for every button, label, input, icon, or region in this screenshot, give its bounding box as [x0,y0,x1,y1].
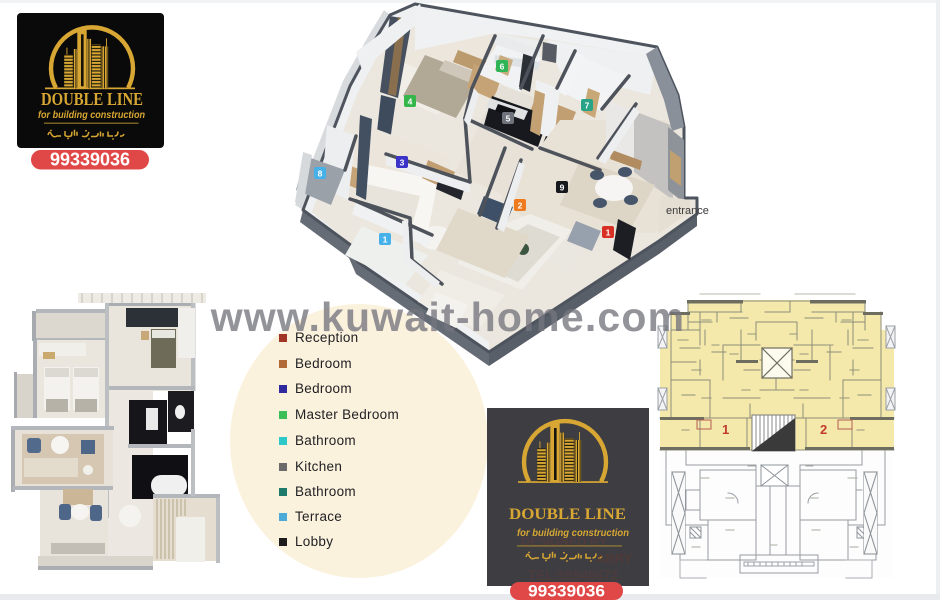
svg-text:DESIGNED BY: DESIGNED BY [521,535,608,549]
svg-text:entrance: entrance [666,205,709,217]
svg-text:6: 6 [500,62,505,72]
svg-text:5: 5 [506,114,511,124]
svg-text:7: 7 [585,101,590,111]
svg-text:1: 1 [722,422,729,437]
svg-text:for building construction: for building construction [38,110,145,121]
svg-text:99339036: 99339036 [528,583,605,600]
svg-text:TEL:55546672: TEL:55546672 [528,568,618,583]
svg-text:Bathroom: Bathroom [295,433,356,448]
svg-text:8: 8 [318,169,323,179]
svg-text:2: 2 [518,201,523,211]
svg-text:DOUBLE LINE: DOUBLE LINE [41,89,143,109]
svg-text:1: 1 [606,228,611,238]
svg-text:9: 9 [560,183,565,193]
svg-text:Lobby: Lobby [295,534,333,549]
svg-text:Bedroom: Bedroom [295,356,352,371]
svg-text:4: 4 [408,97,413,107]
svg-text:Reception: Reception [295,330,359,345]
svg-text:1: 1 [383,235,388,245]
svg-text:Bedroom: Bedroom [295,381,352,396]
svg-text:Terrace: Terrace [295,509,342,524]
svg-text:2: 2 [820,422,827,437]
svg-text:Bathroom: Bathroom [295,484,356,499]
svg-text:99339036: 99339036 [50,150,130,170]
svg-text:Master Bedroom: Master Bedroom [295,407,399,422]
svg-text:www.kuwait-home.com: www.kuwait-home.com [210,294,686,340]
svg-text:3: 3 [400,158,405,168]
svg-text:ABRY: ABRY [596,551,633,566]
svg-text:Kitchen: Kitchen [295,459,342,474]
svg-text:DOUBLE LINE: DOUBLE LINE [509,506,626,523]
